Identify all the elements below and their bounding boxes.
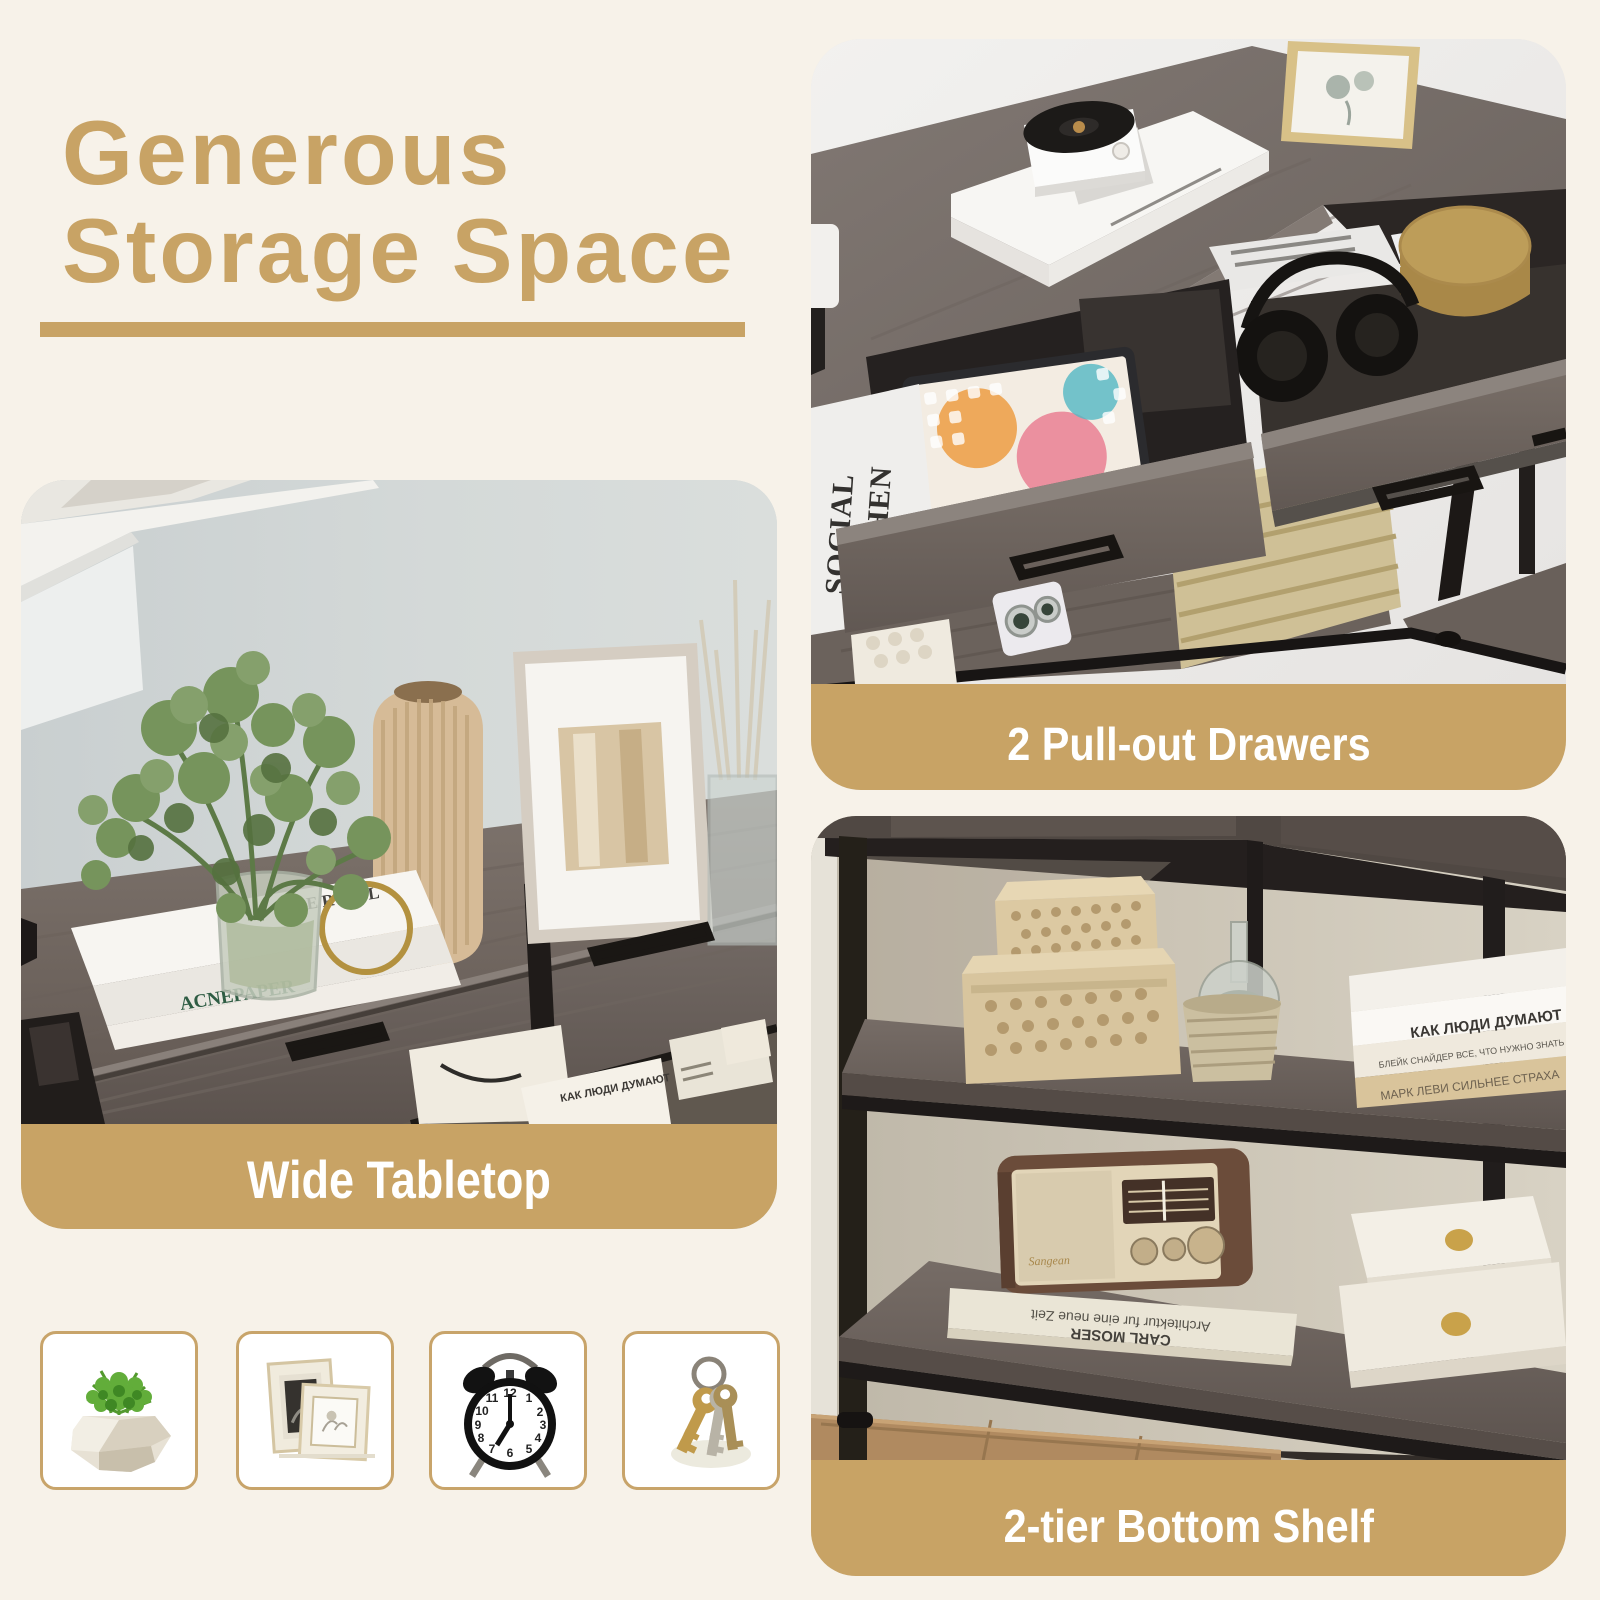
svg-text:5: 5: [526, 1442, 533, 1456]
svg-text:4: 4: [535, 1431, 542, 1445]
svg-text:7: 7: [489, 1442, 496, 1456]
svg-text:9: 9: [475, 1418, 482, 1432]
svg-text:6: 6: [507, 1446, 514, 1460]
svg-text:3: 3: [540, 1418, 547, 1432]
svg-text:Sangean: Sangean: [1028, 1253, 1070, 1268]
svg-text:2: 2: [537, 1405, 544, 1419]
svg-text:1: 1: [526, 1391, 533, 1405]
svg-text:8: 8: [478, 1431, 485, 1445]
svg-text:10: 10: [475, 1404, 489, 1418]
svg-text:11: 11: [486, 1391, 499, 1405]
